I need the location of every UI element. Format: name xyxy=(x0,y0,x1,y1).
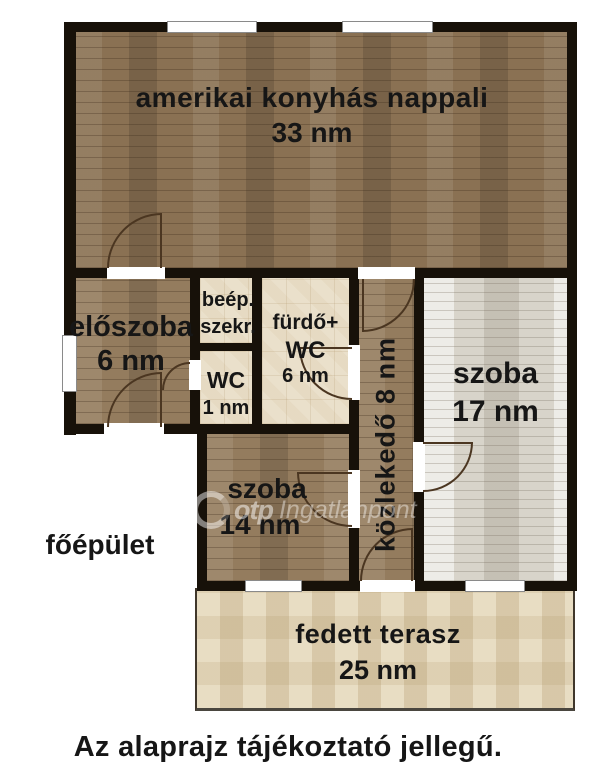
label-kozlekedo: közlekedő 8 nm xyxy=(373,305,400,585)
label-nappali-area: 33 nm xyxy=(76,119,548,147)
window-szoba17-bottom xyxy=(465,580,525,592)
label-szoba17-name: szoba xyxy=(424,359,567,389)
label-wc-name: WC xyxy=(200,369,252,392)
door-opening-nappali-eloszoba xyxy=(107,267,165,279)
terrace-floor xyxy=(195,588,575,711)
window-szoba14-bottom xyxy=(245,580,302,592)
label-wc-area: 1 nm xyxy=(196,398,256,418)
caption-disclaimer: Az alaprajz tájékoztató jellegű. xyxy=(20,733,556,762)
label-nappali-name: amerikai konyhás nappali xyxy=(76,84,548,112)
label-furdo-area: 6 nm xyxy=(262,366,349,386)
wall-top-exterior xyxy=(64,22,577,32)
label-terasz-area: 25 nm xyxy=(195,657,561,684)
room-szoba17-floor xyxy=(424,278,567,581)
label-szoba14-area: 14 nm xyxy=(200,511,320,539)
wall-right-exterior xyxy=(567,22,577,591)
label-furdo-line1: fürdő+ xyxy=(262,312,349,333)
label-building: főépület xyxy=(20,531,180,559)
wall-szoba14-left xyxy=(197,424,207,591)
label-terasz-name: fedett terasz xyxy=(195,621,561,648)
window-top-left xyxy=(167,21,257,33)
wall-kozlekedo-right xyxy=(414,278,424,591)
door-opening-nappali-kozlekedo xyxy=(358,267,415,279)
label-szoba14-name: szoba xyxy=(207,475,327,503)
label-szoba17-area: 17 nm xyxy=(424,397,567,427)
label-furdo-line2: WC xyxy=(262,339,349,363)
window-top-right xyxy=(342,21,433,33)
label-szekreny-line2: szekr. xyxy=(190,317,266,337)
label-szekreny-line1: beép. xyxy=(190,290,266,310)
wall-kozlekedo-left xyxy=(349,278,359,591)
label-eloszoba-area: 6 nm xyxy=(44,347,218,376)
floorplan-canvas: amerikai konyhás nappali 33 nm előszoba … xyxy=(0,0,615,768)
